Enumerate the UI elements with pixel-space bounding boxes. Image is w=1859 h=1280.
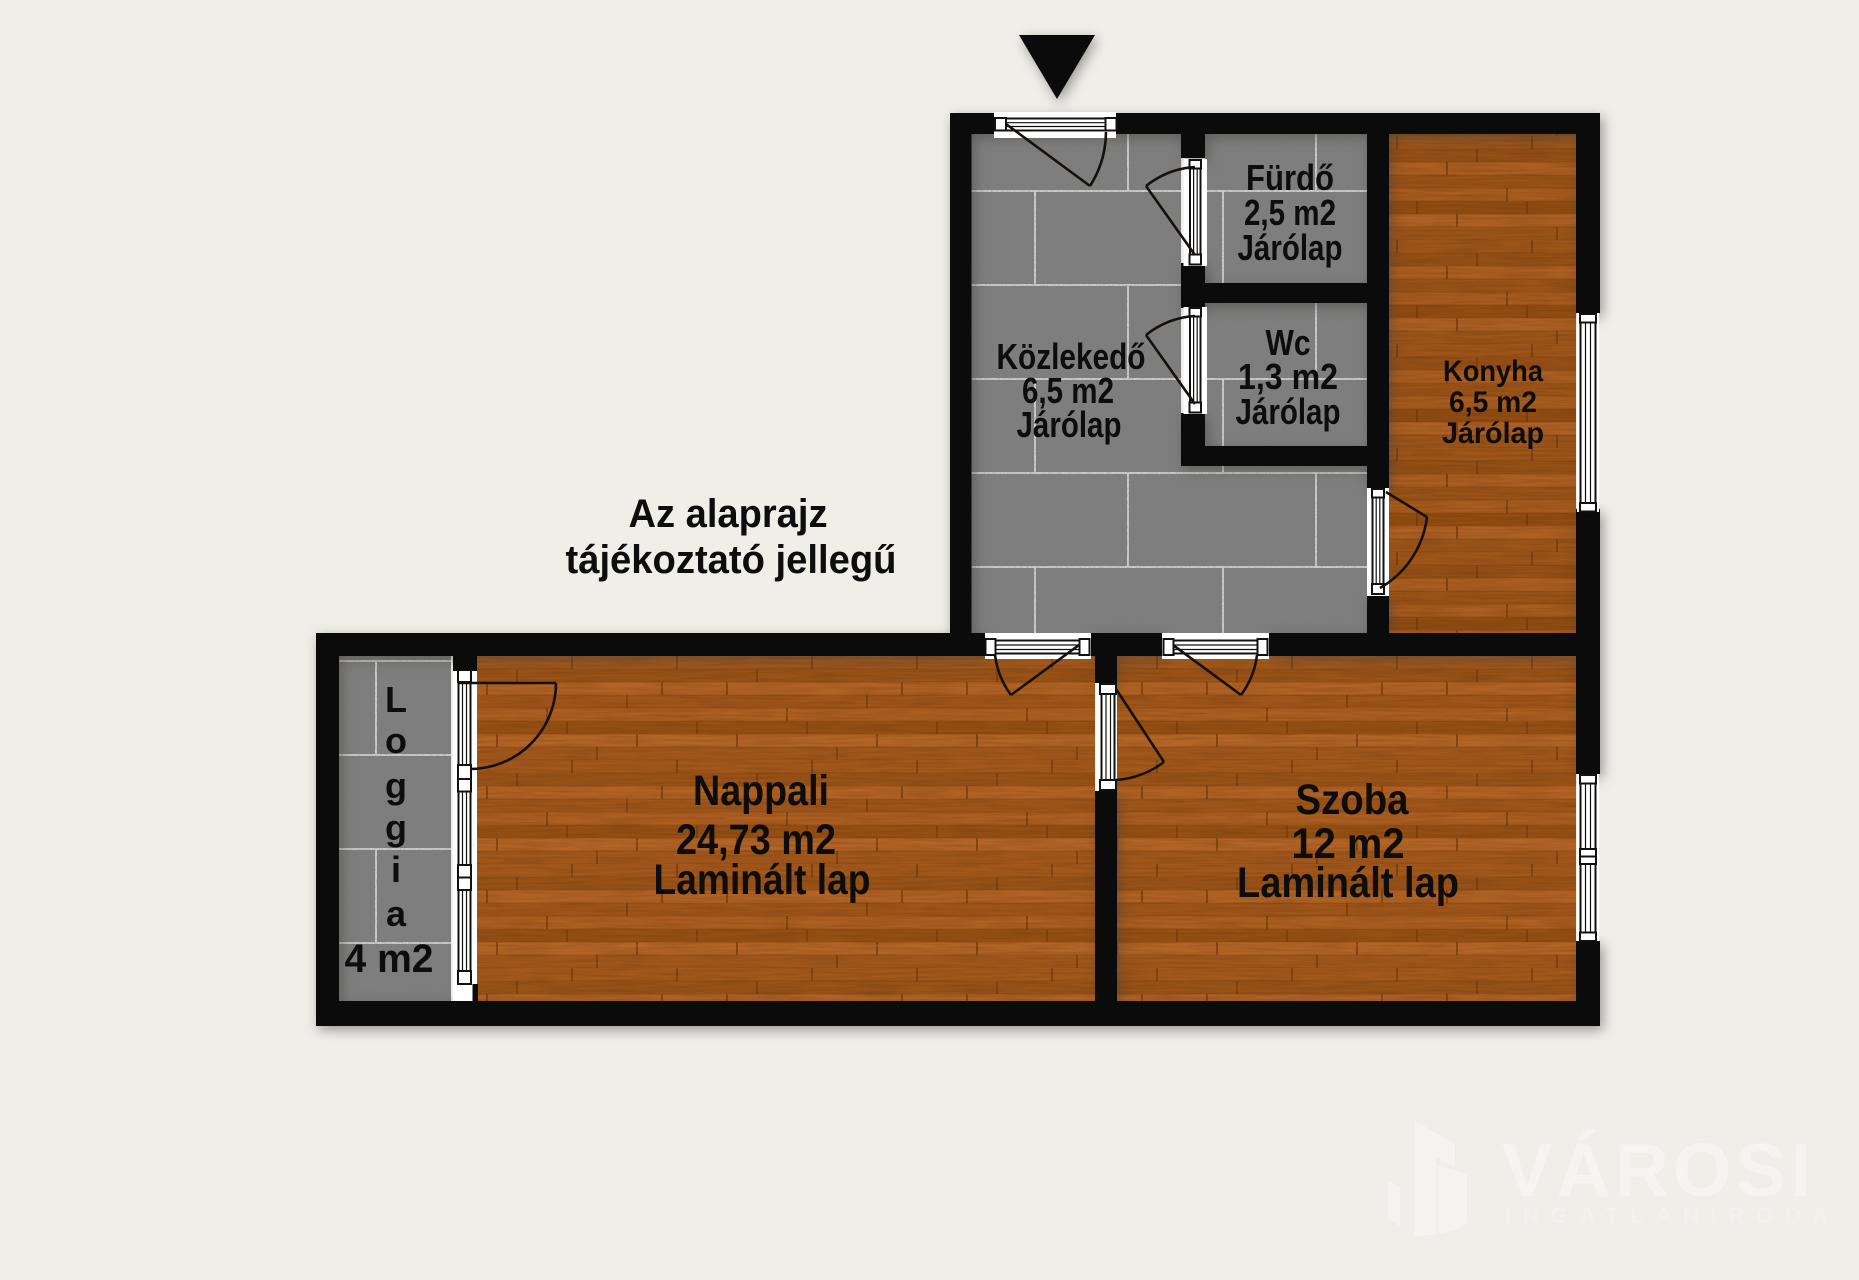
svg-text:Laminált lap: Laminált lap (1237, 859, 1459, 907)
svg-text:tájékoztató jellegű: tájékoztató jellegű (566, 538, 897, 582)
svg-text:INGATLANIRODA: INGATLANIRODA (1505, 1203, 1840, 1228)
svg-text:g: g (385, 765, 407, 806)
svg-text:VÁROSI: VÁROSI (1502, 1128, 1815, 1212)
svg-text:Járólap: Járólap (1236, 391, 1341, 432)
svg-text:o: o (385, 720, 407, 761)
svg-text:Nappali: Nappali (693, 767, 829, 815)
svg-text:6,5 m2: 6,5 m2 (1449, 386, 1537, 419)
svg-text:g: g (385, 807, 407, 848)
svg-text:Konyha: Konyha (1443, 355, 1543, 388)
svg-text:a: a (386, 893, 407, 934)
svg-text:i: i (391, 849, 401, 890)
svg-text:Járólap: Járólap (1442, 417, 1544, 450)
svg-text:Járólap: Járólap (1238, 227, 1343, 268)
svg-text:Az alaprajz: Az alaprajz (629, 492, 828, 536)
svg-text:4 m2: 4 m2 (345, 937, 434, 981)
svg-text:L: L (385, 679, 407, 720)
svg-text:Járólap: Járólap (1017, 404, 1122, 445)
svg-text:Szoba: Szoba (1296, 776, 1410, 824)
svg-text:Laminált lap: Laminált lap (654, 856, 871, 904)
